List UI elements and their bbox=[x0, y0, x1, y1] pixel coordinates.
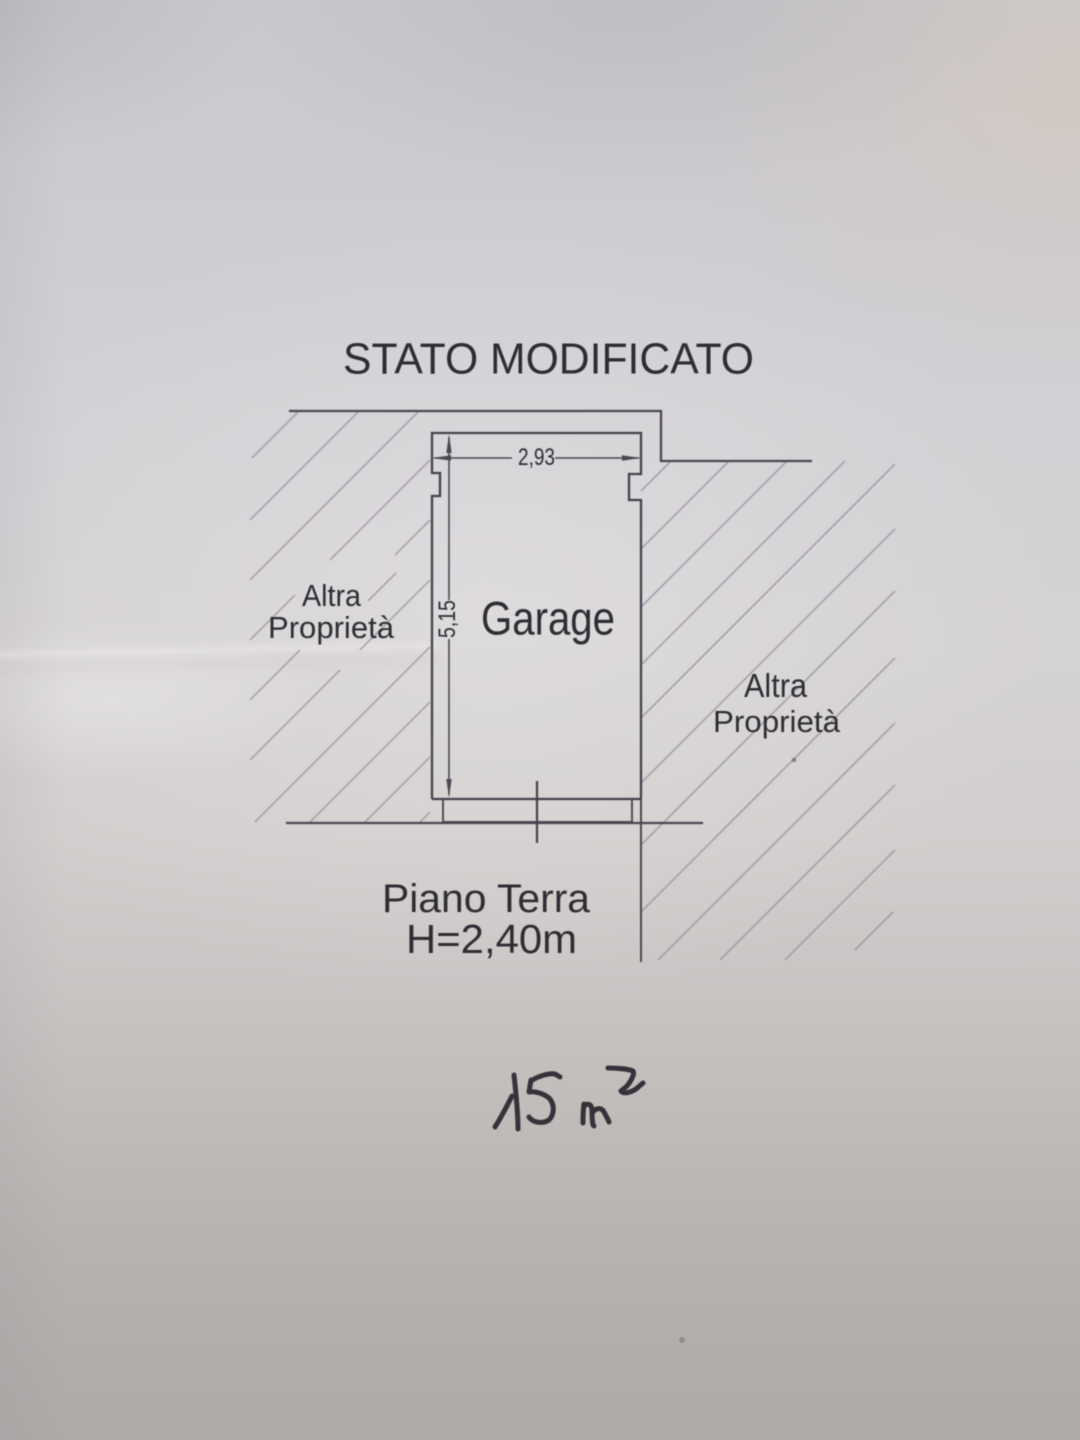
svg-text:Altra: Altra bbox=[302, 578, 362, 613]
svg-text:H=2,40m: H=2,40m bbox=[406, 916, 577, 962]
svg-text:5,15: 5,15 bbox=[434, 600, 461, 638]
svg-text:STATO MODIFICATO: STATO MODIFICATO bbox=[343, 335, 754, 384]
svg-text:Proprietà: Proprietà bbox=[268, 610, 395, 645]
svg-text:Proprietà: Proprietà bbox=[713, 704, 841, 739]
svg-text:Piano Terra: Piano Terra bbox=[382, 877, 591, 921]
svg-text:Garage: Garage bbox=[481, 592, 615, 645]
svg-text:Altra: Altra bbox=[744, 667, 808, 704]
svg-text:2,93: 2,93 bbox=[518, 444, 555, 471]
